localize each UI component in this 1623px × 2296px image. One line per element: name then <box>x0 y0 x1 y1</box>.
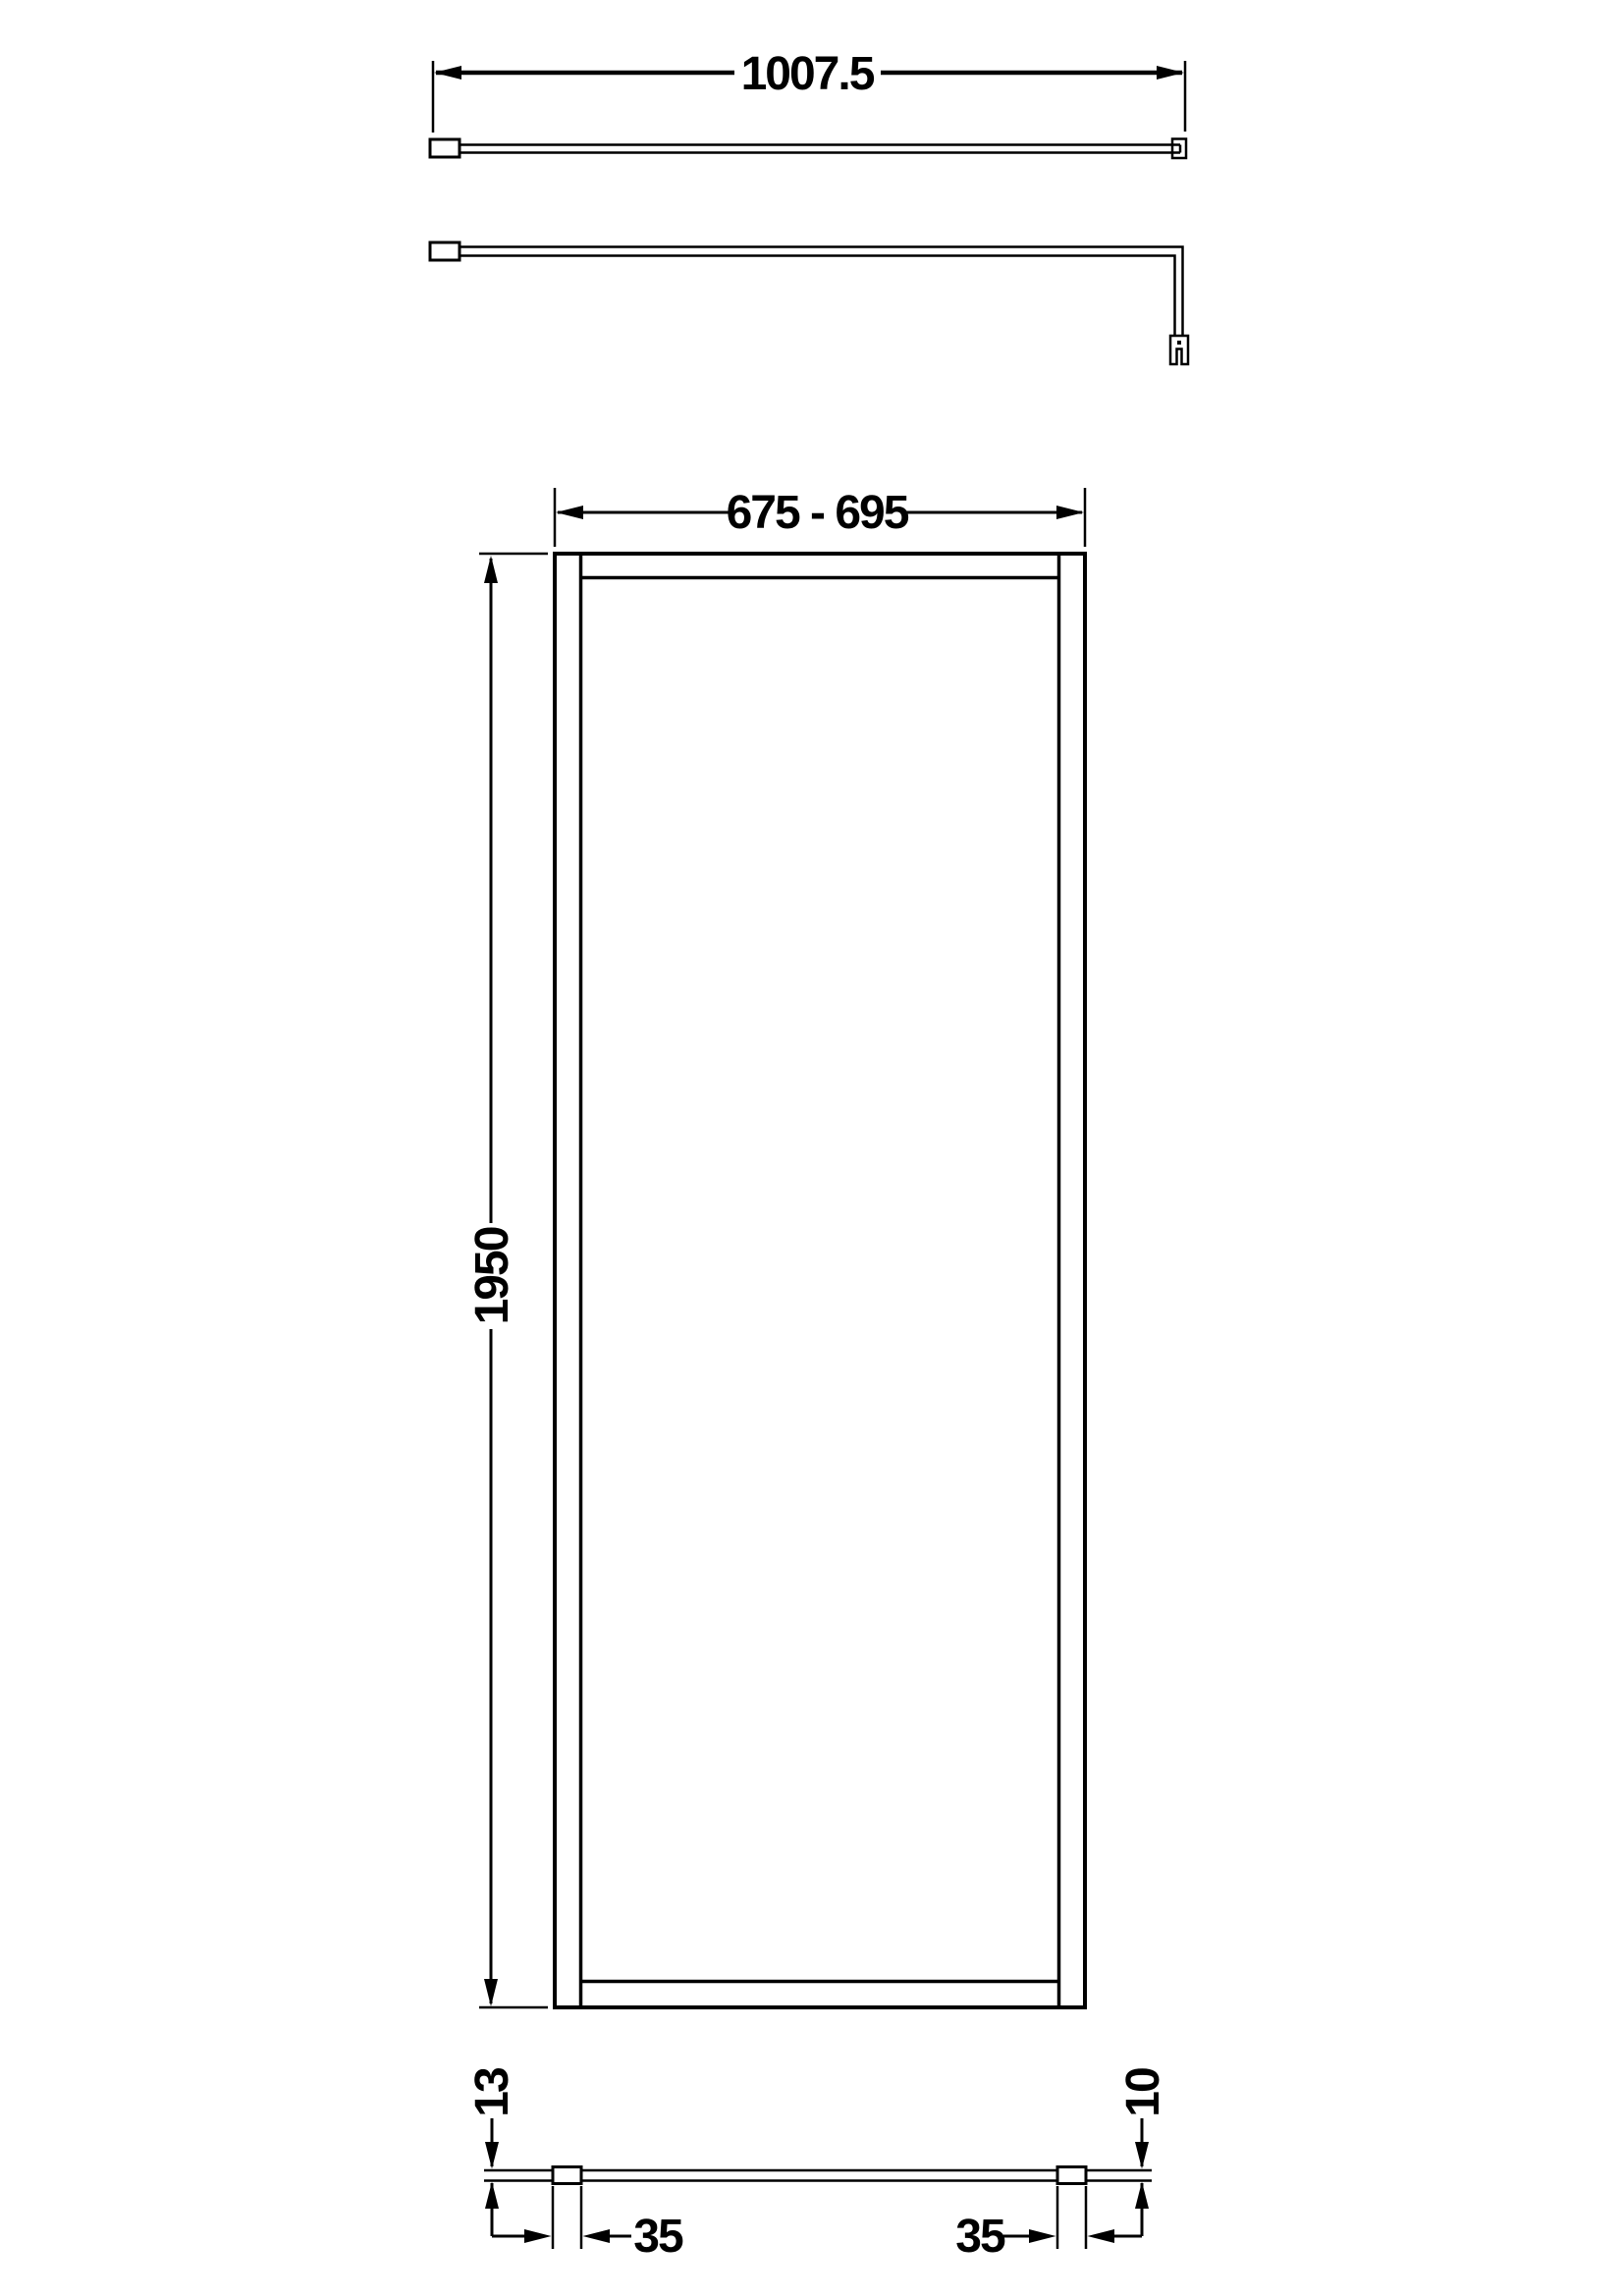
dim-panel-width-label: 675 - 695 <box>727 487 909 539</box>
clamp-screw <box>1177 341 1181 345</box>
dim-arrow <box>556 506 583 519</box>
dim-left-profile-depth: 13 <box>466 2068 518 2236</box>
dim-arrow <box>484 1979 498 2006</box>
dim-glass-thickness-label: 10 <box>1117 2068 1169 2117</box>
dim-left-profile-depth-label: 13 <box>466 2068 518 2117</box>
wall-bracket <box>430 242 460 260</box>
dim-right-profile-width: 35 <box>955 2186 1142 2263</box>
bar-inner-edge <box>460 256 1175 337</box>
dim-arrow <box>583 2229 611 2243</box>
bar-outer-edge <box>460 247 1183 337</box>
dim-arrow <box>524 2229 552 2243</box>
dim-arrow <box>1135 2142 1149 2169</box>
dim-panel-height-label: 1950 <box>466 1227 518 1324</box>
drawing-canvas: 1007.5 675 - 695 1950 <box>0 0 1623 2296</box>
panel-outer-frame <box>555 554 1085 2007</box>
dim-arrow <box>1088 2229 1115 2243</box>
dim-left-profile-width-label: 35 <box>633 2211 683 2263</box>
dim-panel-height: 1950 <box>466 554 548 2007</box>
support-bar-side-view <box>430 242 1188 364</box>
dim-support-bar-length-label: 1007.5 <box>741 48 875 100</box>
support-bar-plan-view <box>430 139 1186 159</box>
dim-arrow <box>1157 66 1184 80</box>
dim-arrow <box>484 556 498 583</box>
dim-arrow <box>1029 2229 1056 2243</box>
panel-front-view <box>555 554 1085 2007</box>
panel-plan-section <box>484 2167 1152 2184</box>
right-wall-profile-section <box>1057 2167 1086 2184</box>
dim-left-profile-width: 35 <box>492 2186 683 2263</box>
dim-arrow <box>434 66 461 80</box>
dim-arrow <box>485 2142 499 2169</box>
dim-right-profile-width-label: 35 <box>955 2211 1005 2263</box>
dim-support-bar-length: 1007.5 <box>433 48 1185 133</box>
dim-panel-width: 675 - 695 <box>555 487 1085 547</box>
wall-bracket <box>430 139 460 157</box>
dim-glass-thickness: 10 <box>1117 2068 1169 2236</box>
glass-clamp <box>1170 336 1188 364</box>
technical-drawing: 1007.5 675 - 695 1950 <box>0 0 1623 2296</box>
dim-arrow <box>1056 506 1084 519</box>
left-wall-profile-section <box>553 2167 581 2184</box>
